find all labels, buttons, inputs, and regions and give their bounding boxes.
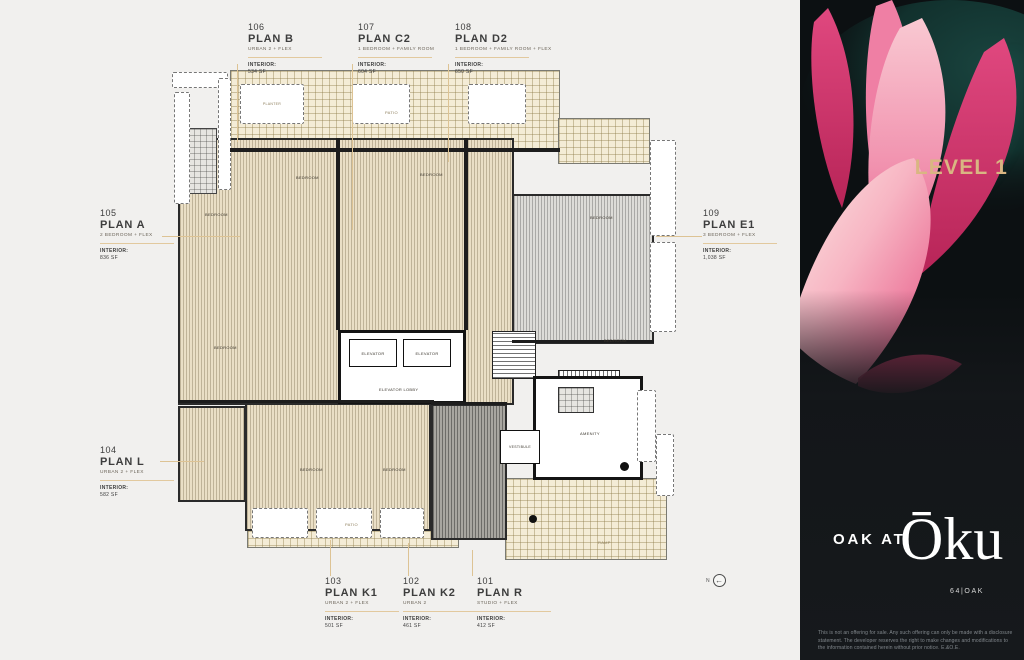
stair-core [492, 331, 536, 379]
room-label-bedroom: BEDROOM [604, 338, 627, 343]
leader-line-107 [352, 64, 353, 230]
interior-area: 501 SF [325, 623, 399, 629]
interior-area: 582 SF [100, 492, 174, 498]
room-label-patio: PATIO [345, 522, 358, 527]
leader-line-103 [330, 540, 331, 576]
vestibule-label: VESTIBULE [509, 445, 531, 449]
lotus-flower-image [800, 0, 1024, 400]
elevator-cab-1: ELEVATOR [349, 339, 397, 367]
unit-area-109 [512, 194, 654, 344]
brand-subtitle: 64|OAK [950, 588, 984, 595]
elevator-label: ELEVATOR [361, 351, 384, 356]
interior-label: INTERIOR: [100, 248, 174, 254]
planter-box: PLANTER [240, 84, 304, 124]
unit-area-101 [431, 404, 507, 540]
floor-plan: ELEVATOR ELEVATOR ELEVATOR LOBBY AMENITY… [0, 0, 800, 660]
legal-disclaimer: This is not an offering for sale. Any su… [818, 630, 1014, 653]
unit-callout-109: 109 PLAN E1 3 BEDROOM + FLEX INTERIOR: 1… [703, 208, 777, 261]
interior-label: INTERIOR: [358, 62, 434, 68]
elevator-lobby-label: ELEVATOR LOBBY [379, 387, 418, 392]
unit-number: 101 [477, 576, 551, 586]
elevator-core: ELEVATOR ELEVATOR ELEVATOR LOBBY [338, 330, 466, 404]
unit-callout-103: 103 PLAN K1 URBAN 2 + FLEX INTERIOR: 501… [325, 576, 399, 629]
wall-segment [431, 402, 507, 405]
interior-area: 604 SF [358, 69, 434, 75]
callout-divider [248, 57, 322, 58]
unit-plan-name: PLAN K1 [325, 587, 399, 599]
unit-type: URBAN 2 + FLEX [325, 601, 399, 606]
interior-label: INTERIOR: [100, 485, 174, 491]
unit-callout-106: 106 PLAN B URBAN 2 + FLEX INTERIOR: 534 … [248, 22, 322, 75]
planter-box [650, 140, 676, 236]
unit-type: 2 BEDROOM + FLEX [100, 233, 174, 238]
planter-box [656, 434, 674, 496]
unit-callout-104: 104 PLAN L URBAN 2 + FLEX INTERIOR: 582 … [100, 445, 174, 498]
callout-divider [455, 57, 529, 58]
vestibule-room: VESTIBULE [500, 430, 540, 464]
unit-plan-name: PLAN L [100, 456, 174, 468]
brochure-page: ELEVATOR ELEVATOR ELEVATOR LOBBY AMENITY… [0, 0, 1024, 660]
leader-line-106 [237, 64, 238, 142]
unit-type: STUDIO + FLEX [477, 601, 551, 606]
planter-box [252, 508, 308, 538]
unit-number: 106 [248, 22, 322, 32]
wall-segment [464, 138, 468, 330]
interior-label: INTERIOR: [455, 62, 552, 68]
unit-type: 1 BEDROOM + FAMILY ROOM [358, 47, 434, 52]
unit-callout-105: 105 PLAN A 2 BEDROOM + FLEX INTERIOR: 83… [100, 208, 174, 261]
unit-plan-name: PLAN R [477, 587, 551, 599]
room-label-bedroom: BEDROOM [300, 467, 323, 472]
interior-area: 461 SF [403, 623, 477, 629]
leader-line-109 [656, 236, 702, 237]
leader-line-102 [408, 543, 409, 576]
callout-divider [403, 611, 477, 612]
planter-box [380, 508, 424, 538]
interior-area: 412 SF [477, 623, 551, 629]
amenity-kitchenette [558, 387, 594, 413]
leader-line-101 [472, 550, 473, 576]
callout-divider [358, 57, 432, 58]
unit-type: 1 BEDROOM + FAMILY ROOM + FLEX [455, 47, 552, 52]
room-label-patio: PATIO [385, 110, 398, 115]
level-title: LEVEL 1 [800, 156, 1008, 180]
unit-plan-name: PLAN K2 [403, 587, 477, 599]
brand-prefix: OAK AT [833, 531, 906, 548]
planter-box [174, 92, 190, 204]
room-label-bedroom: BEDROOM [420, 172, 443, 177]
room-label-bedroom: BEDROOM [296, 175, 319, 180]
unit-type: URBAN 2 + FLEX [248, 47, 322, 52]
unit-number: 105 [100, 208, 174, 218]
planter-box [468, 84, 526, 124]
leader-line-108 [448, 64, 449, 162]
wall-segment [178, 400, 434, 403]
north-compass: N ← [706, 574, 726, 587]
planter-box [316, 508, 372, 538]
unit-callout-108: 108 PLAN D2 1 BEDROOM + FAMILY ROOM + FL… [455, 22, 552, 75]
interior-area: 836 SF [100, 255, 174, 261]
interior-label: INTERIOR: [248, 62, 322, 68]
room-label-ramp: RAMP [598, 540, 611, 545]
room-label-bedroom: BEDROOM [590, 215, 613, 220]
unit-number: 108 [455, 22, 552, 32]
unit-number: 109 [703, 208, 777, 218]
unit-plan-name: PLAN A [100, 219, 174, 231]
planter-box [352, 84, 410, 124]
north-label: N [706, 578, 710, 584]
interior-label: INTERIOR: [477, 616, 551, 622]
brand-logo: Ōku [900, 506, 1003, 572]
unit-number: 102 [403, 576, 477, 586]
unit-number: 107 [358, 22, 434, 32]
compass-icon: ← [713, 574, 726, 587]
unit-callout-102: 102 PLAN K2 URBAN 2 INTERIOR: 461 SF [403, 576, 477, 629]
interior-label: INTERIOR: [403, 616, 477, 622]
callout-divider [100, 243, 174, 244]
unit-callout-107: 107 PLAN C2 1 BEDROOM + FAMILY ROOM INTE… [358, 22, 434, 75]
room-label-bedroom: BEDROOM [214, 345, 237, 350]
unit-number: 103 [325, 576, 399, 586]
callout-divider [703, 243, 777, 244]
column-dot [620, 462, 629, 471]
unit-plan-name: PLAN E1 [703, 219, 777, 231]
unit-plan-name: PLAN C2 [358, 33, 434, 45]
patio-top-right [558, 118, 650, 164]
unit-number: 104 [100, 445, 174, 455]
side-panel: LEVEL 1 OAK AT Ōku 64|OAK This is not an… [800, 0, 1024, 660]
callout-divider [100, 480, 174, 481]
room-label-bedroom: BEDROOM [205, 212, 228, 217]
interior-area: 650 SF [455, 69, 552, 75]
elevator-label: ELEVATOR [415, 351, 438, 356]
planter-box [650, 242, 676, 332]
callout-divider [477, 611, 551, 612]
interior-area: 534 SF [248, 69, 322, 75]
unit-callout-101: 101 PLAN R STUDIO + FLEX INTERIOR: 412 S… [477, 576, 551, 629]
unit-plan-name: PLAN D2 [455, 33, 552, 45]
wall-segment [336, 138, 340, 330]
wall-segment [230, 148, 560, 152]
unit-type: 3 BEDROOM + FLEX [703, 233, 777, 238]
planter-box [637, 390, 656, 462]
callout-divider [325, 611, 399, 612]
wall-segment [512, 340, 654, 343]
unit-area-104 [178, 406, 246, 502]
elevator-cab-2: ELEVATOR [403, 339, 451, 367]
amenity-label: AMENITY [580, 431, 600, 436]
unit-plan-name: PLAN B [248, 33, 322, 45]
unit-type: URBAN 2 + FLEX [100, 470, 174, 475]
planter-label: PLANTER [263, 102, 281, 106]
room-label-bedroom: BEDROOM [383, 467, 406, 472]
planter-box [218, 78, 231, 190]
interior-label: INTERIOR: [703, 248, 777, 254]
interior-area: 1,038 SF [703, 255, 777, 261]
column-dot [529, 515, 537, 523]
interior-label: INTERIOR: [325, 616, 399, 622]
unit-type: URBAN 2 [403, 601, 477, 606]
